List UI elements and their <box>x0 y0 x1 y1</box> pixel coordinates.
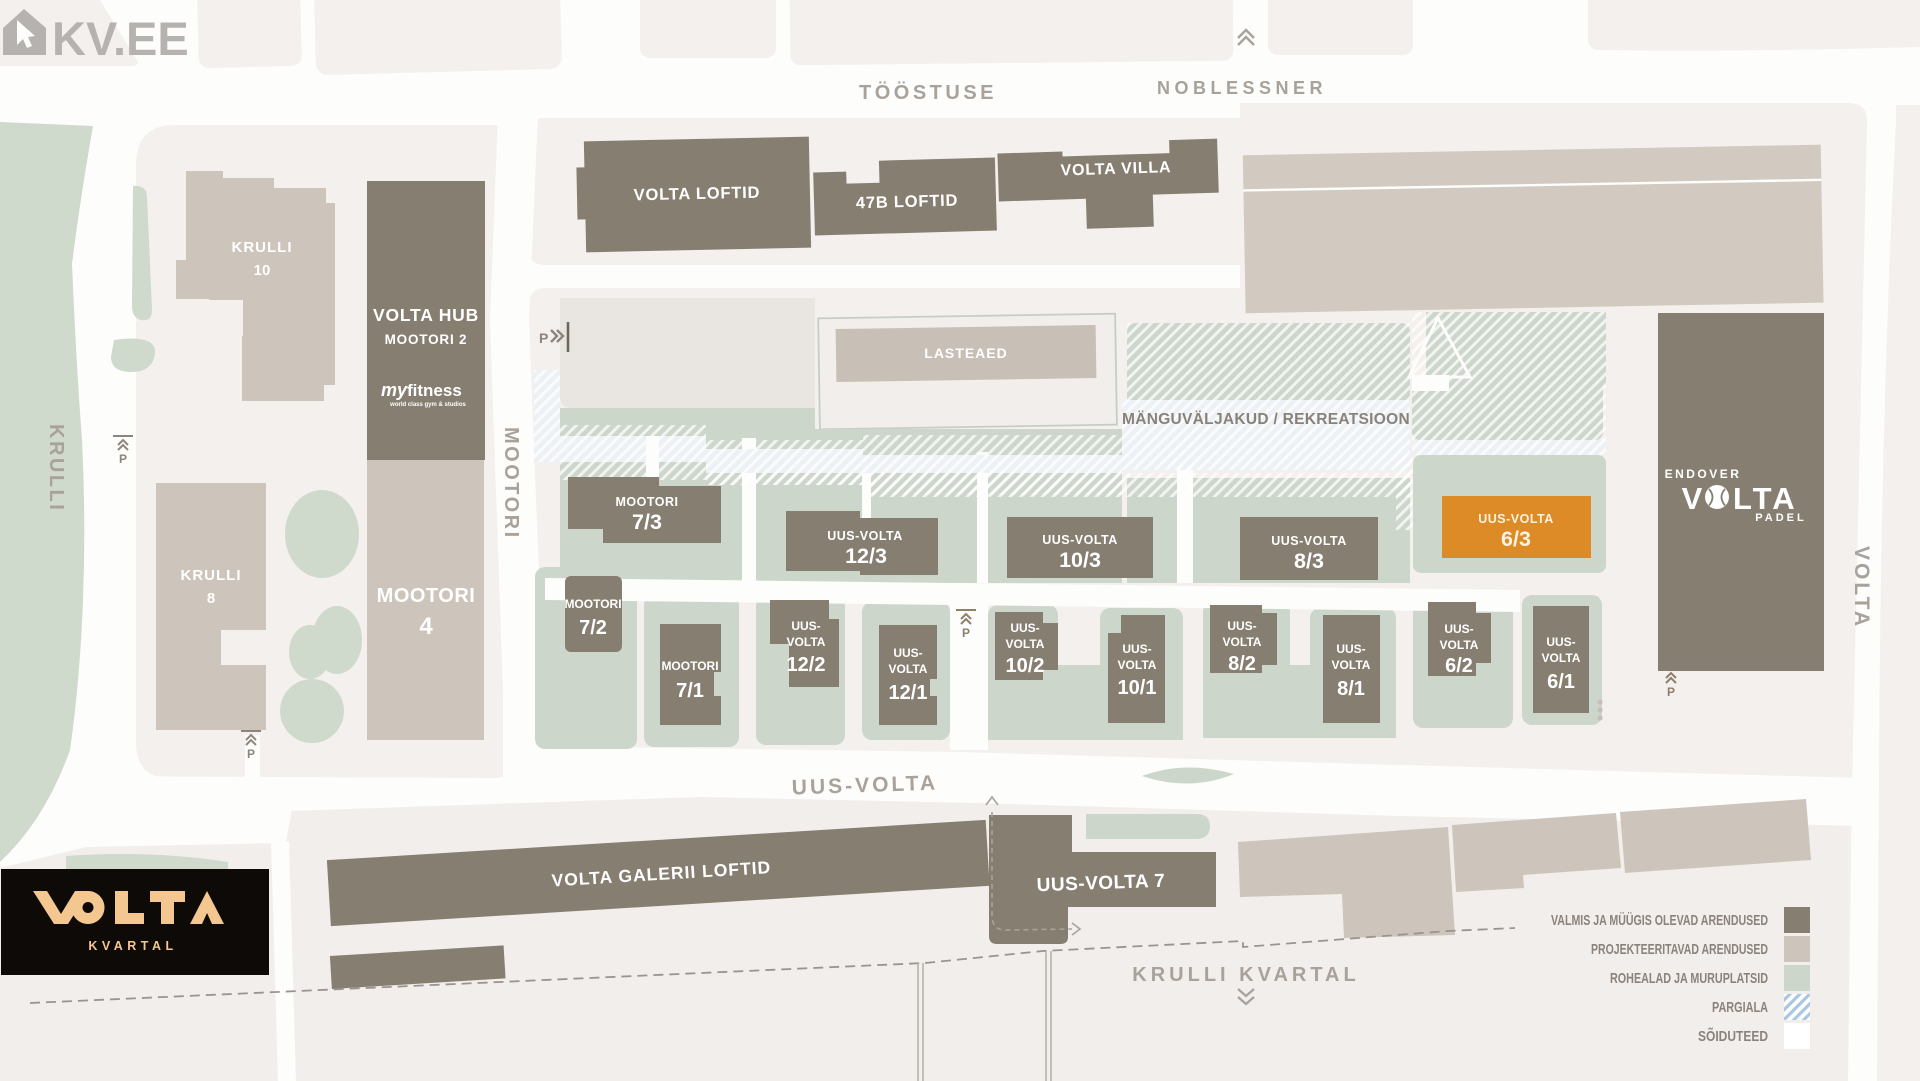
svg-text:8: 8 <box>207 590 215 607</box>
svg-text:VOLTA: VOLTA <box>1542 651 1581 665</box>
svg-text:VOLTA: VOLTA <box>1332 658 1371 672</box>
svg-text:VOLTA VILLA: VOLTA VILLA <box>1060 159 1171 179</box>
svg-text:MOOTORI: MOOTORI <box>661 659 718 673</box>
svg-text:UUS-: UUS- <box>1122 642 1151 656</box>
svg-text:VALMIS JA MÜÜGIS OLEVAD ARENDU: VALMIS JA MÜÜGIS OLEVAD ARENDUSED <box>1551 912 1768 929</box>
svg-text:47B LOFTID: 47B LOFTID <box>856 192 959 213</box>
svg-text:10: 10 <box>254 262 271 279</box>
svg-text:MÄNGUVÄLJAKUD / REKREATSIOON: MÄNGUVÄLJAKUD / REKREATSIOON <box>1122 411 1410 428</box>
svg-text:world class gym & studios: world class gym & studios <box>389 402 466 408</box>
svg-text:PROJEKTEERITAVAD ARENDUSED: PROJEKTEERITAVAD ARENDUSED <box>1591 941 1768 958</box>
svg-text:UUS-VOLTA: UUS-VOLTA <box>1271 534 1347 548</box>
svg-text:fitness: fitness <box>407 381 462 400</box>
svg-text:VOLTA: VOLTA <box>889 662 928 676</box>
svg-text:LTA: LTA <box>1733 481 1798 516</box>
svg-text:MOOTORI: MOOTORI <box>500 427 522 540</box>
svg-text:UUS-: UUS- <box>1444 622 1473 636</box>
svg-text:VOLTA LOFTID: VOLTA LOFTID <box>633 184 760 205</box>
svg-text:UUS-VOLTA: UUS-VOLTA <box>827 529 903 543</box>
svg-text:VOLTA: VOLTA <box>1118 658 1157 672</box>
svg-text:UUS-: UUS- <box>893 646 922 660</box>
svg-text:MOOTORI 2: MOOTORI 2 <box>385 332 468 347</box>
svg-text:ROHEALAD JA MURUPLATSID: ROHEALAD JA MURUPLATSID <box>1610 970 1768 987</box>
svg-text:12/1: 12/1 <box>889 682 928 704</box>
svg-text:UUS-: UUS- <box>1227 619 1256 633</box>
svg-text:12/2: 12/2 <box>787 654 826 676</box>
svg-text:P: P <box>247 747 255 761</box>
svg-text:TÖÖSTUSE: TÖÖSTUSE <box>859 81 997 104</box>
svg-text:8/1: 8/1 <box>1337 678 1365 700</box>
svg-text:4: 4 <box>419 613 433 640</box>
svg-text:MOOTORI: MOOTORI <box>377 585 476 607</box>
svg-text:SÕIDUTEED: SÕIDUTEED <box>1698 1027 1768 1045</box>
svg-text:V: V <box>1682 481 1703 516</box>
svg-text:6/2: 6/2 <box>1445 655 1473 677</box>
svg-text:UUS-: UUS- <box>791 619 820 633</box>
svg-text:VOLTA HUB: VOLTA HUB <box>373 305 479 325</box>
svg-text:8/3: 8/3 <box>1294 549 1324 573</box>
svg-text:UUS-: UUS- <box>1546 635 1575 649</box>
svg-text:VOLTA: VOLTA <box>1850 546 1873 629</box>
svg-text:UUS-VOLTA: UUS-VOLTA <box>1042 533 1118 547</box>
svg-text:ENDOVER: ENDOVER <box>1665 467 1742 481</box>
svg-text:VOLTA: VOLTA <box>1006 637 1045 651</box>
svg-text:8/2: 8/2 <box>1228 653 1256 675</box>
svg-text:KVARTAL: KVARTAL <box>88 939 177 953</box>
svg-text:P: P <box>1667 685 1675 699</box>
svg-text:PADEL: PADEL <box>1755 512 1806 524</box>
svg-text:UUS-: UUS- <box>1010 621 1039 635</box>
svg-text:KRULLI: KRULLI <box>45 424 67 512</box>
svg-text:PARGIALA: PARGIALA <box>1712 999 1768 1016</box>
svg-text:12/3: 12/3 <box>845 544 887 568</box>
svg-text:6/1: 6/1 <box>1547 671 1575 693</box>
svg-text:P: P <box>119 452 127 466</box>
svg-text:VOLTA: VOLTA <box>1440 638 1479 652</box>
svg-text:MOOTORI: MOOTORI <box>564 597 621 611</box>
svg-text:6/3: 6/3 <box>1501 527 1531 551</box>
svg-text:7/3: 7/3 <box>632 510 662 534</box>
svg-text:VOLTA: VOLTA <box>787 635 826 649</box>
svg-text:P: P <box>539 330 548 346</box>
svg-text:KRULLI: KRULLI <box>232 239 293 256</box>
svg-text:10/3: 10/3 <box>1059 548 1101 572</box>
svg-text:UUS-VOLTA: UUS-VOLTA <box>1478 512 1554 526</box>
svg-text:10/1: 10/1 <box>1118 677 1157 699</box>
svg-text:MOOTORI: MOOTORI <box>616 495 679 509</box>
svg-text:KRULLI KVARTAL: KRULLI KVARTAL <box>1132 964 1359 986</box>
svg-text:7/1: 7/1 <box>676 680 704 702</box>
svg-text:LASTEAED: LASTEAED <box>924 345 1007 361</box>
svg-text:VOLTA: VOLTA <box>1223 635 1262 649</box>
svg-text:my: my <box>381 380 408 400</box>
svg-text:KRULLI: KRULLI <box>181 567 242 584</box>
svg-text:KV.EE: KV.EE <box>52 12 189 65</box>
svg-text:10/2: 10/2 <box>1006 655 1045 677</box>
svg-text:UUS-: UUS- <box>1336 642 1365 656</box>
svg-text:7/2: 7/2 <box>579 617 607 639</box>
svg-text:UUS-VOLTA 7: UUS-VOLTA 7 <box>1036 871 1165 896</box>
svg-text:P: P <box>962 626 970 640</box>
svg-text:NOBLESSNER: NOBLESSNER <box>1157 78 1327 98</box>
